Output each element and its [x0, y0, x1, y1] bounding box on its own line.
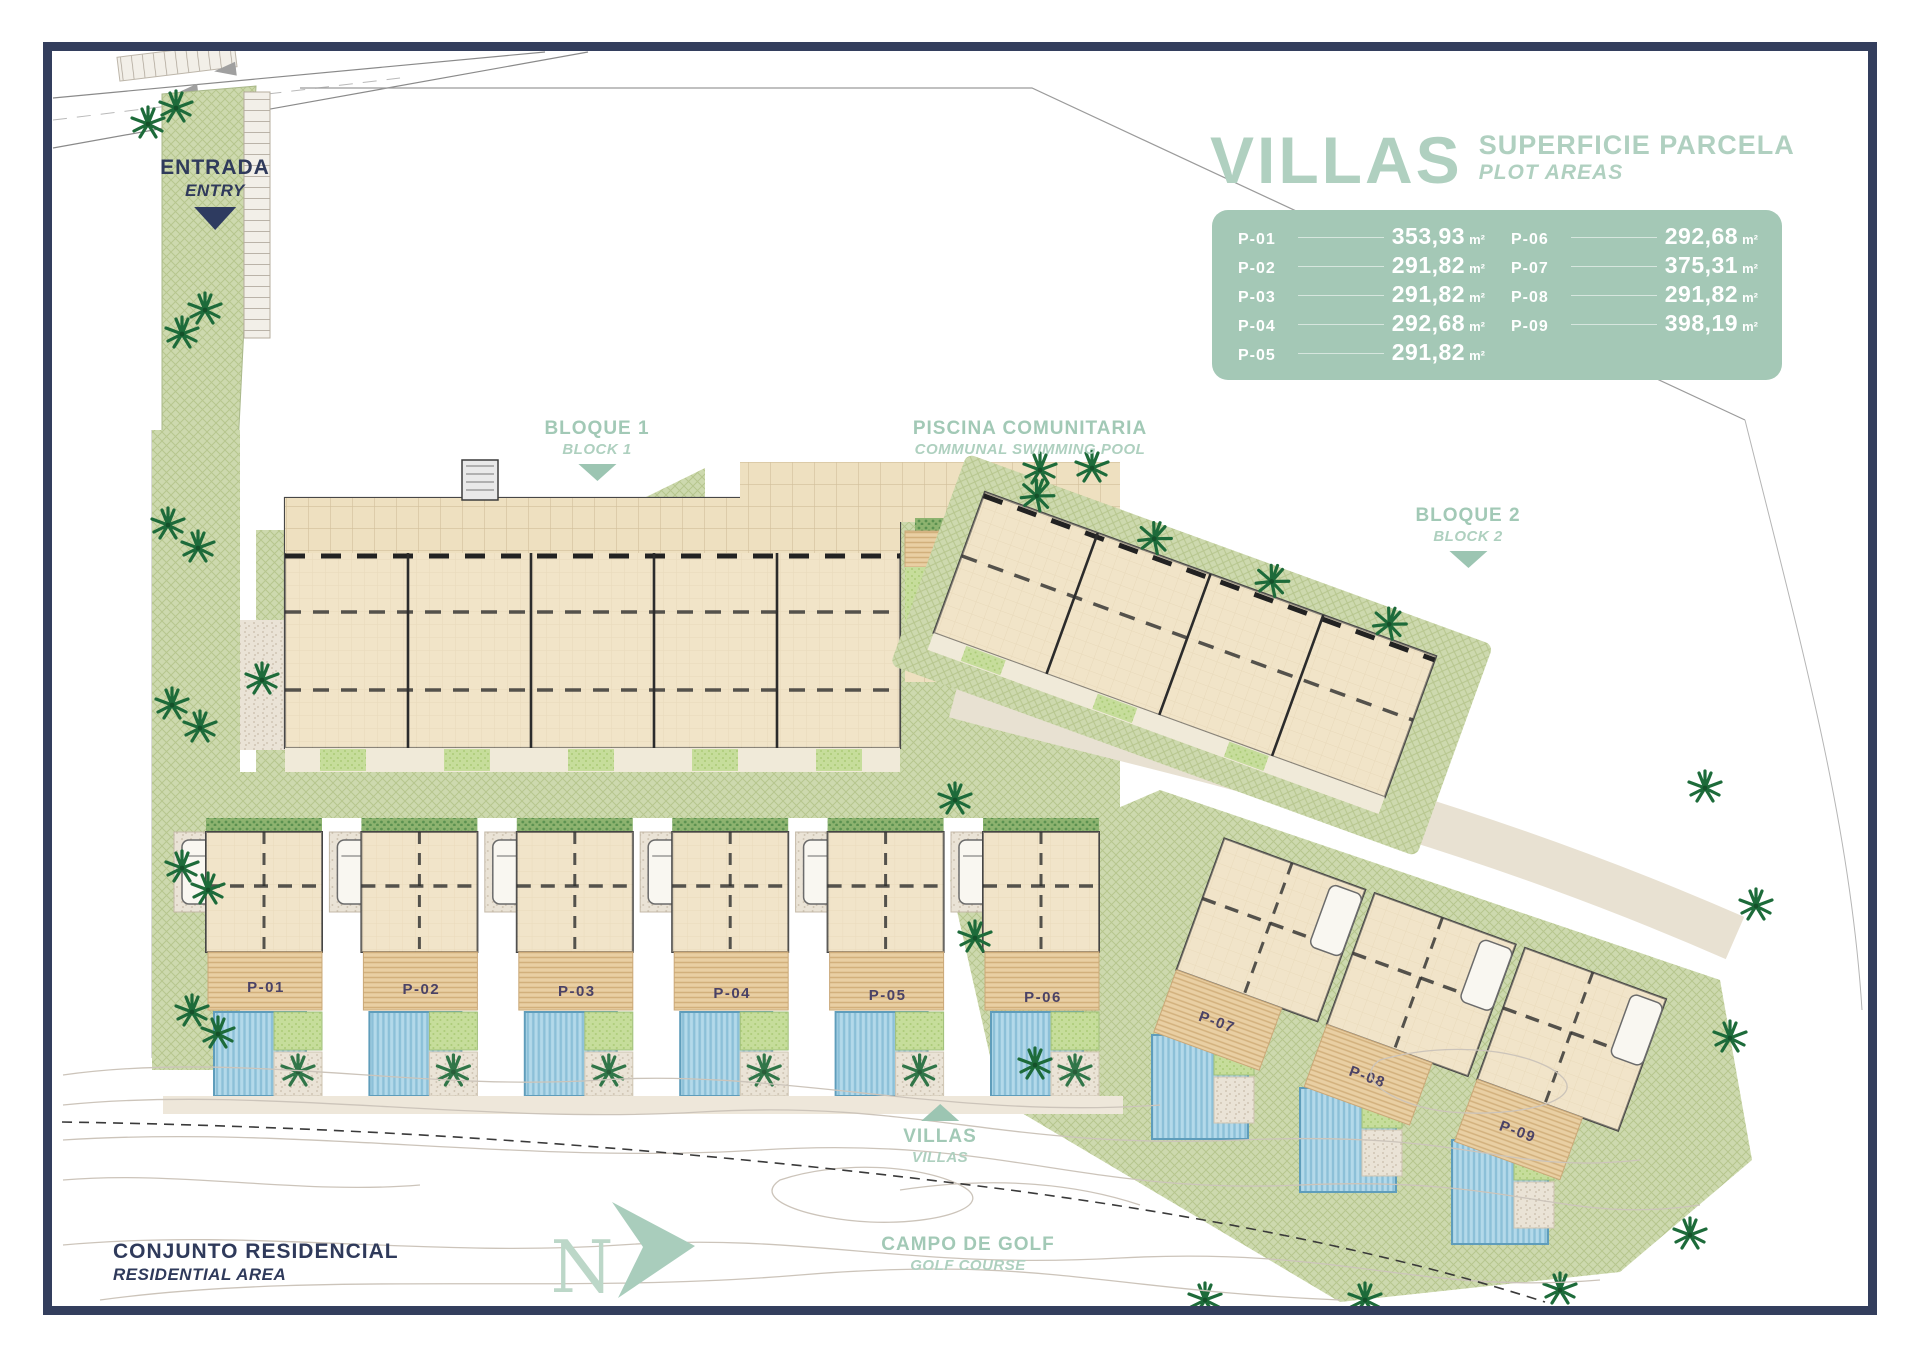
palm-tree-icon — [1689, 771, 1721, 801]
legend-row: P-09398,19m² — [1511, 310, 1758, 339]
entry-driveway — [162, 86, 270, 450]
pool-label-en: COMMUNAL SWIMMING POOL — [913, 441, 1147, 458]
north-compass: N — [551, 1202, 696, 1309]
plot-id: P-04 — [1238, 318, 1290, 336]
pool-label-es: PISCINA COMUNITARIA — [913, 418, 1147, 440]
plot-area-value: 291,82 — [1392, 281, 1465, 308]
plot-marker: P-05 — [869, 987, 907, 1004]
plot-id: P-09 — [1511, 318, 1563, 336]
villas-label-en: VILLAS — [903, 1149, 977, 1166]
entrance-label-es: ENTRADA — [160, 156, 270, 180]
entrance-arrow-icon — [194, 207, 236, 230]
plot-area-value: 291,82 — [1665, 281, 1738, 308]
golf-label-es: CAMPO DE GOLF — [881, 1234, 1054, 1256]
plot-marker: P-01 — [247, 979, 285, 996]
villa-plot — [640, 818, 788, 1096]
plot-area-value: 353,93 — [1392, 223, 1465, 250]
plot-area-unit: m² — [1469, 232, 1485, 247]
legend-row: P-02291,82m² — [1238, 252, 1485, 281]
legend-subtitle-es: SUPERFICIE PARCELA — [1479, 130, 1795, 161]
legend-row: P-01353,93m² — [1238, 223, 1485, 252]
palm-tree-icon — [1740, 889, 1772, 919]
legend-row: P-04292,68m² — [1238, 310, 1485, 339]
golf-label: CAMPO DE GOLF GOLF COURSE — [881, 1234, 1054, 1274]
residential-label: CONJUNTO RESIDENCIAL RESIDENTIAL AREA — [113, 1240, 399, 1285]
plot-area-value: 292,68 — [1665, 223, 1738, 250]
plot-area-value: 291,82 — [1392, 339, 1465, 366]
plot-id: P-01 — [1238, 231, 1290, 249]
block1-arrow-icon — [578, 464, 616, 481]
plot-area-value: 292,68 — [1392, 310, 1465, 337]
block1-label-es: BLOQUE 1 — [544, 418, 649, 440]
leader-line — [1298, 237, 1384, 238]
golf-label-en: GOLF COURSE — [881, 1257, 1054, 1274]
residential-label-en: RESIDENTIAL AREA — [113, 1265, 399, 1285]
legend-col-left: P-01353,93m²P-02291,82m²P-03291,82m²P-04… — [1238, 223, 1485, 368]
residential-label-es: CONJUNTO RESIDENCIAL — [113, 1240, 399, 1264]
villa-plot — [796, 818, 944, 1096]
plot-area-unit: m² — [1742, 319, 1758, 334]
plot-area-unit: m² — [1469, 348, 1485, 363]
plot-id: P-03 — [1238, 289, 1290, 307]
entrance-label-en: ENTRY — [160, 181, 270, 201]
entrance-label: ENTRADA ENTRY — [160, 156, 270, 230]
plot-marker: P-03 — [558, 983, 596, 1000]
legend-subtitle-en: PLOT AREAS — [1479, 161, 1795, 185]
plot-marker: P-02 — [403, 981, 441, 998]
leader-line — [1298, 353, 1384, 354]
north-letter: N — [551, 1225, 614, 1309]
plot-area-unit: m² — [1469, 261, 1485, 276]
plot-marker: P-04 — [713, 985, 751, 1002]
plot-area-unit: m² — [1742, 232, 1758, 247]
plot-areas-table: P-01353,93m²P-02291,82m²P-03291,82m²P-04… — [1212, 210, 1782, 380]
block2-arrow-icon — [1449, 551, 1487, 568]
legend-row: P-03291,82m² — [1238, 281, 1485, 310]
legend-row: P-06292,68m² — [1511, 223, 1758, 252]
palm-tree-icon — [1189, 1283, 1221, 1313]
plot-area-value: 291,82 — [1392, 252, 1465, 279]
leader-line — [1298, 324, 1384, 325]
plot-id: P-02 — [1238, 260, 1290, 278]
plot-id: P-06 — [1511, 231, 1563, 249]
legend-title-main: VILLAS — [1210, 132, 1463, 188]
villa-plot — [329, 818, 477, 1096]
leader-line — [1571, 266, 1657, 267]
block2-label-es: BLOQUE 2 — [1415, 505, 1520, 527]
pool-label: PISCINA COMUNITARIA COMMUNAL SWIMMING PO… — [913, 418, 1147, 458]
villas-arrow-icon — [921, 1104, 959, 1121]
legend-title: VILLAS SUPERFICIE PARCELA PLOT AREAS — [1210, 130, 1795, 188]
plot-area-unit: m² — [1469, 290, 1485, 305]
leader-line — [1571, 295, 1657, 296]
villa-plot — [485, 818, 633, 1096]
plot-area-unit: m² — [1742, 261, 1758, 276]
site-plan-page: P-07 P-08 P-09 P-01 P-02 P-03 P-04 P-05 … — [0, 0, 1920, 1357]
block1-label-en: BLOCK 1 — [544, 441, 649, 458]
plot-id: P-08 — [1511, 289, 1563, 307]
plot-area-value: 375,31 — [1665, 252, 1738, 279]
leader-line — [1298, 266, 1384, 267]
block1-label: BLOQUE 1 BLOCK 1 — [544, 418, 649, 481]
legend-row: P-07375,31m² — [1511, 252, 1758, 281]
legend-row: P-08291,82m² — [1511, 281, 1758, 310]
palm-tree-icon — [1674, 1218, 1706, 1248]
plot-id: P-05 — [1238, 347, 1290, 365]
legend-col-right: P-06292,68m²P-07375,31m²P-08291,82m²P-09… — [1511, 223, 1758, 368]
legend-row: P-05291,82m² — [1238, 339, 1485, 368]
plot-marker: P-06 — [1024, 989, 1062, 1006]
leader-line — [1571, 324, 1657, 325]
plot-id: P-07 — [1511, 260, 1563, 278]
leader-line — [1571, 237, 1657, 238]
plot-area-unit: m² — [1469, 319, 1485, 334]
villas-label-es: VILLAS — [903, 1126, 977, 1148]
block2-label-en: BLOCK 2 — [1415, 528, 1520, 545]
leader-line — [1298, 295, 1384, 296]
plot-area-unit: m² — [1742, 290, 1758, 305]
villas-label: VILLAS VILLAS — [903, 1104, 977, 1166]
block2-label: BLOQUE 2 BLOCK 2 — [1415, 505, 1520, 568]
plot-area-value: 398,19 — [1665, 310, 1738, 337]
